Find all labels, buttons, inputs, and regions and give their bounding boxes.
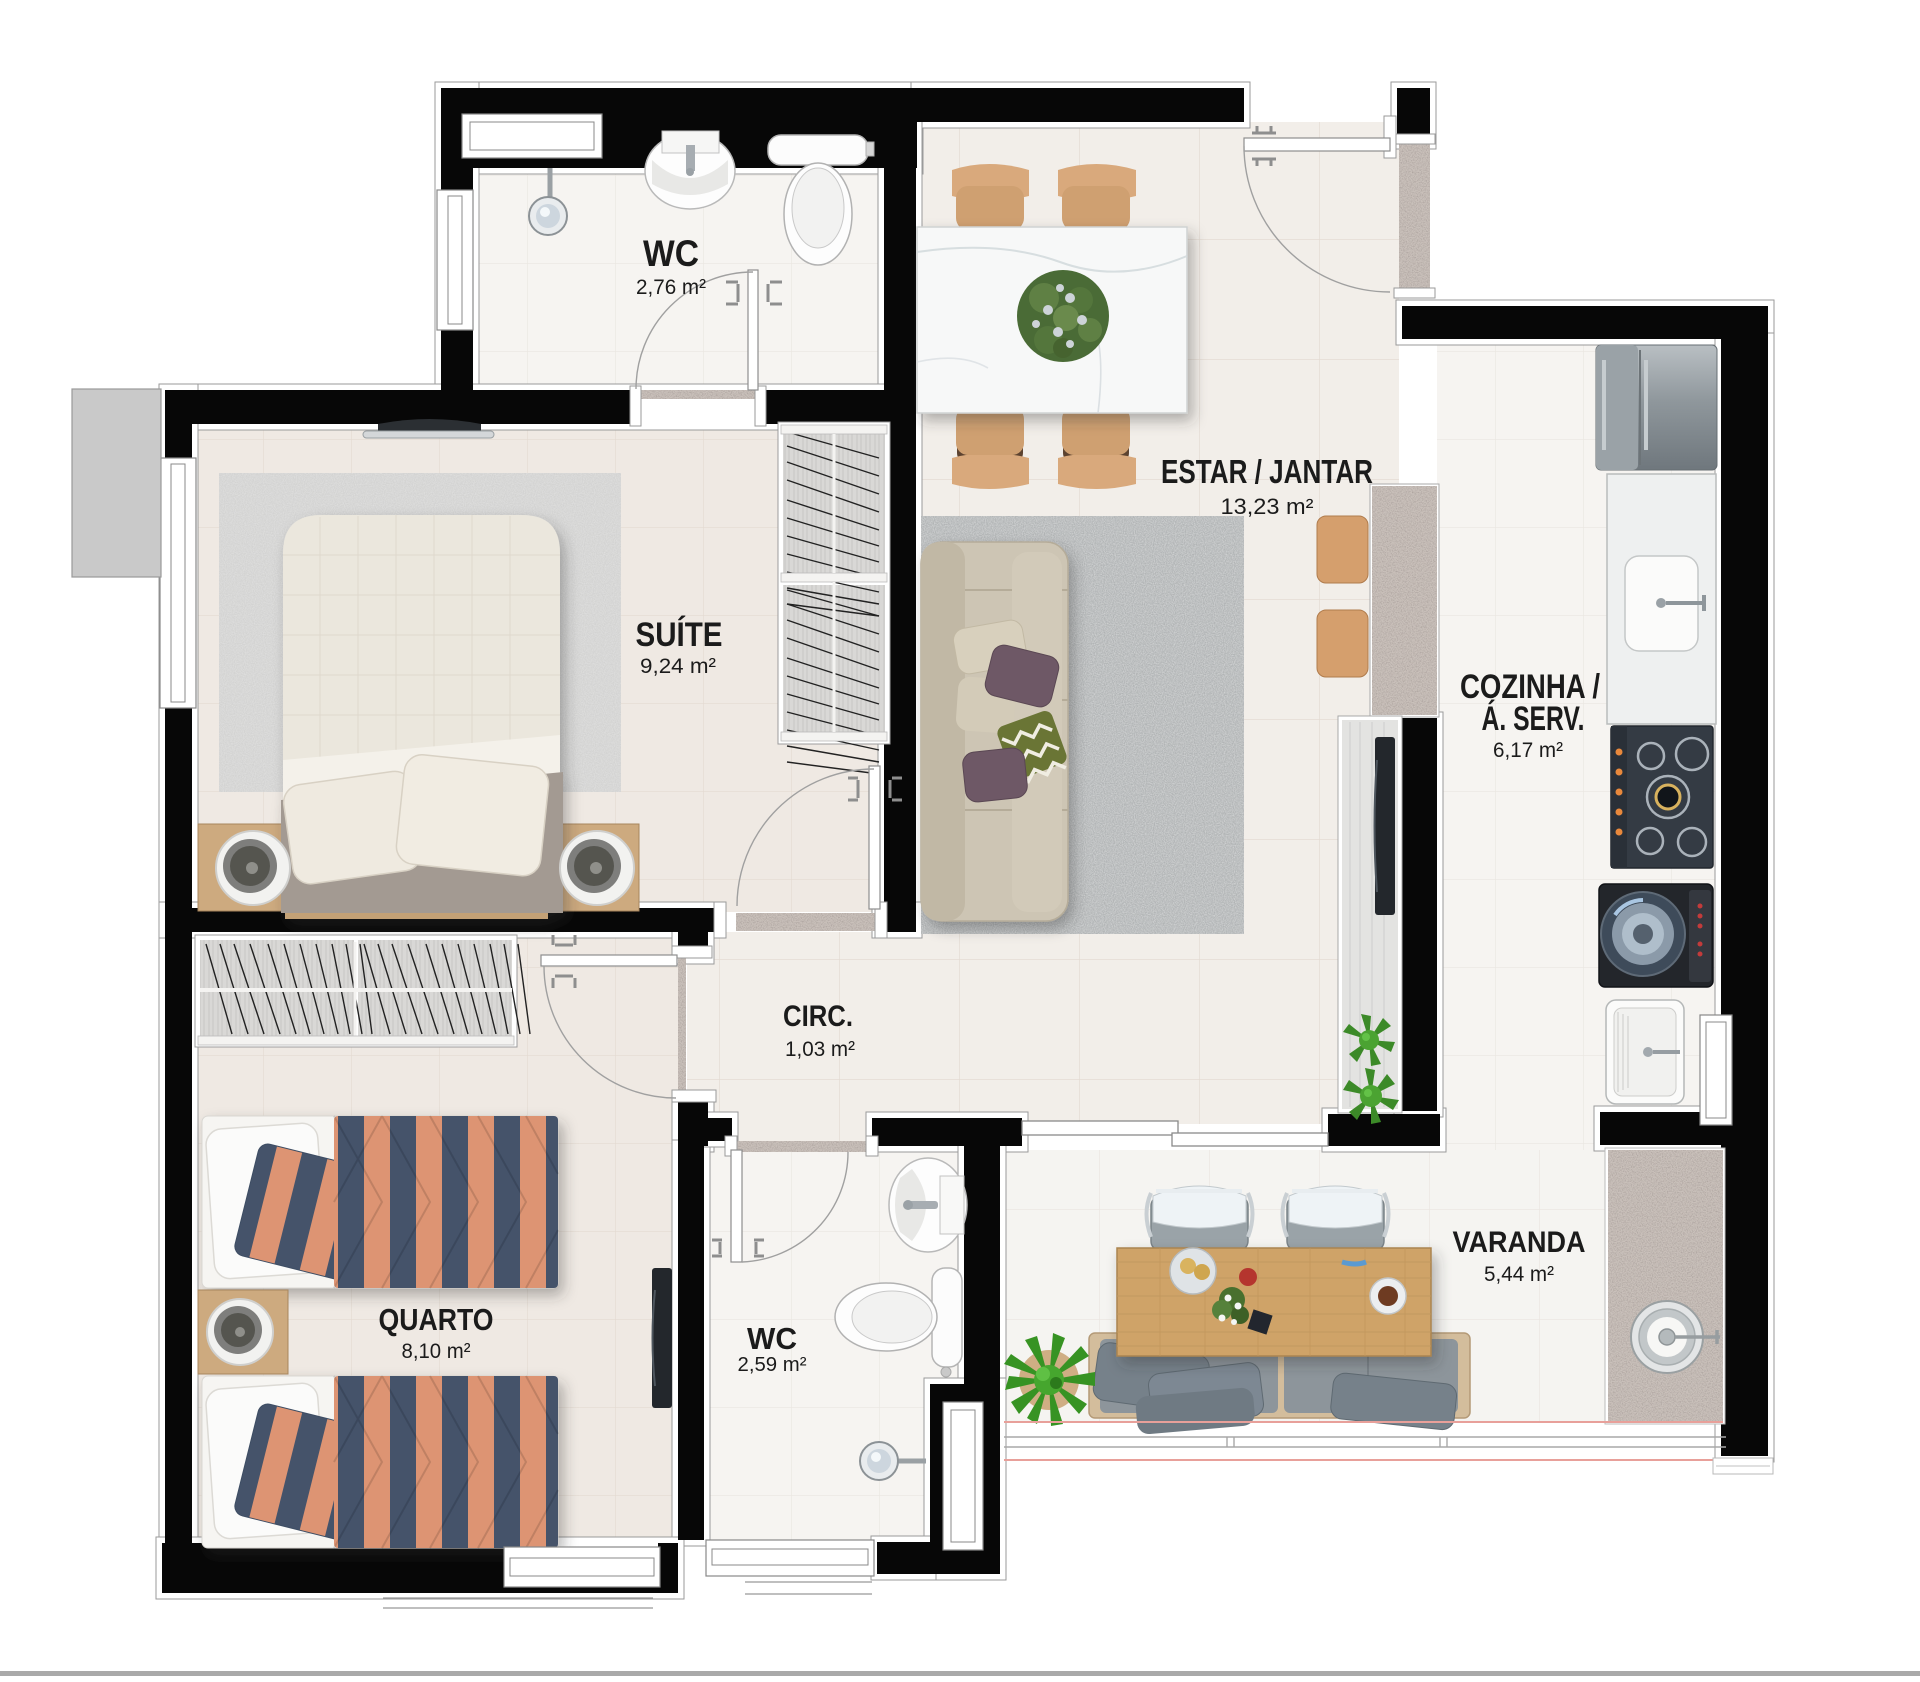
svg-text:8,10 m²: 8,10 m²: [402, 1340, 471, 1363]
svg-text:2,59 m²: 2,59 m²: [738, 1354, 807, 1376]
svg-text:Á. SERV.: Á. SERV.: [1482, 700, 1585, 738]
svg-text:1,03 m²: 1,03 m²: [785, 1038, 855, 1061]
svg-text:9,24 m²: 9,24 m²: [640, 655, 716, 678]
svg-text:VARANDA: VARANDA: [1453, 1226, 1586, 1259]
svg-text:WC: WC: [747, 1321, 797, 1356]
svg-text:2,76 m²: 2,76 m²: [636, 276, 706, 299]
svg-text:WC: WC: [643, 233, 699, 274]
svg-text:QUARTO: QUARTO: [379, 1302, 494, 1337]
svg-text:13,23 m²: 13,23 m²: [1221, 494, 1314, 519]
svg-text:5,44 m²: 5,44 m²: [1484, 1263, 1554, 1286]
svg-text:6,17 m²: 6,17 m²: [1493, 739, 1563, 762]
svg-text:SUÍTE: SUÍTE: [636, 616, 723, 654]
svg-text:ESTAR / JANTAR: ESTAR / JANTAR: [1161, 453, 1373, 490]
svg-text:CIRC.: CIRC.: [783, 1000, 853, 1033]
